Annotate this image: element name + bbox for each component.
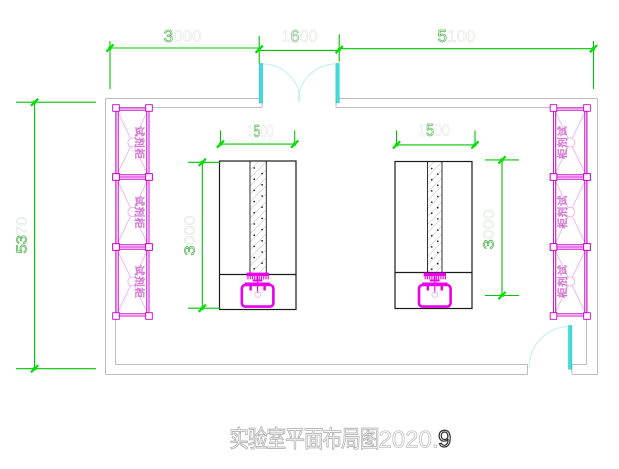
svg-text:3000: 3000 xyxy=(480,209,497,249)
svg-text:1500: 1500 xyxy=(247,121,274,141)
svg-text:3000: 3000 xyxy=(164,26,202,46)
svg-text:3000: 3000 xyxy=(182,216,199,256)
svg-text:5370: 5370 xyxy=(14,217,31,254)
svg-text:1500: 1500 xyxy=(418,120,450,140)
svg-text:2020.: 2020. xyxy=(379,427,439,454)
svg-text:5100: 5100 xyxy=(438,26,476,46)
svg-text:9: 9 xyxy=(438,426,451,453)
svg-text:1600: 1600 xyxy=(282,26,318,46)
